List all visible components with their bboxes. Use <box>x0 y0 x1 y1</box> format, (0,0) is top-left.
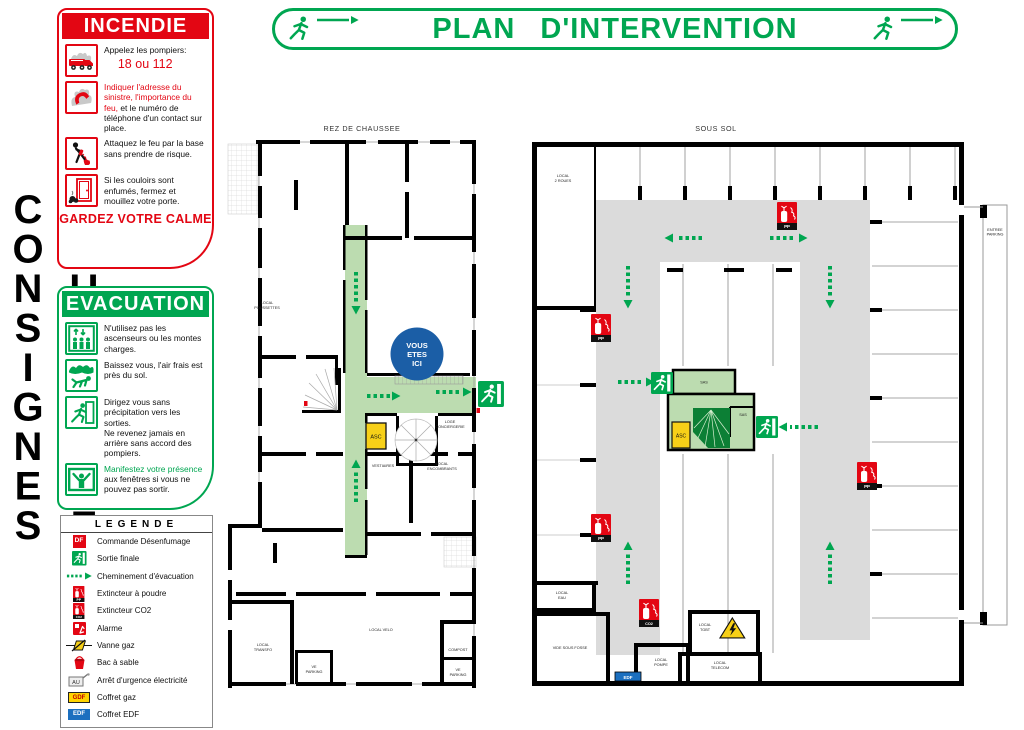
legend-item-alarme: Alarme <box>61 619 212 636</box>
legend-item-vanne-gaz: Vanne gaz <box>61 637 212 654</box>
legend-item-coffret-edf: EDF Coffret EDF <box>61 706 212 723</box>
svg-text:ASC: ASC <box>370 435 381 441</box>
svg-text:PARKING: PARKING <box>450 673 467 677</box>
svg-text:ENTREE: ENTREE <box>987 228 1003 232</box>
incendie-header: INCENDIE <box>62 13 209 39</box>
svg-text:ICI: ICI <box>412 359 422 368</box>
svg-text:CO2: CO2 <box>76 615 83 619</box>
at-windows-text: aux fenêtres si vous ne pouvez pas sorti… <box>104 474 190 494</box>
incendie-item-porte: Si les couloirs sont enfumés, fermez et … <box>59 172 212 209</box>
legend-header: LEGENDE <box>61 516 212 533</box>
svg-text:CO2: CO2 <box>645 622 653 626</box>
final-exit-icon-soussol-east <box>756 416 778 438</box>
legend-item-desenfumage: DF Commande Désenfumage <box>61 533 212 550</box>
svg-text:VOUS: VOUS <box>406 341 428 350</box>
svg-text:COMPOST: COMPOST <box>448 648 468 652</box>
incendie-panel: INCENDIE Appelez les pompiers: 18 ou 112 <box>57 8 214 269</box>
staircase-northwest <box>303 368 337 410</box>
legend-item-bac-sable: Bac à sable <box>61 654 212 671</box>
attack-fire-text: Attaquez le feu par la base sans prendre… <box>104 137 207 159</box>
evacuation-item-ascenseurs: N'utilisez pas les ascenseurs ou les mon… <box>59 320 212 357</box>
final-exit-icon <box>66 551 92 566</box>
svg-text:PP: PP <box>784 224 790 229</box>
staircase-central <box>395 419 437 461</box>
svg-text:POUSSETTES: POUSSETTES <box>254 306 280 310</box>
final-exit-icon-rdc <box>478 381 504 407</box>
svg-text:LOCAL: LOCAL <box>655 658 667 662</box>
legend-item-sortie-finale: Sortie finale <box>61 550 212 567</box>
call-firefighters-text: Appelez les pompiers: <box>104 45 186 55</box>
svg-text:LOGE: LOGE <box>445 420 456 424</box>
svg-text:ENCOMBRANTS: ENCOMBRANTS <box>427 467 457 471</box>
svg-text:LOCAL: LOCAL <box>436 462 448 466</box>
floor-plan-rez-de-chaussee: REZ DE CHAUSSEE <box>226 120 508 692</box>
legend-item-ext-co2: CO2 Extincteur CO2 <box>61 602 212 619</box>
svg-text:LOCAL: LOCAL <box>257 643 269 647</box>
extinguisher-mark <box>304 401 308 406</box>
window-presence-icon <box>65 463 98 496</box>
svg-text:LOCAL VELO: LOCAL VELO <box>369 628 393 632</box>
evacuation-path-icon <box>66 571 92 581</box>
electrical-danger-icon <box>720 618 745 638</box>
svg-text:VESTIAIRES: VESTIAIRES <box>372 464 395 468</box>
svg-text:ASC: ASC <box>676 434 687 440</box>
patio-hatch <box>228 144 258 214</box>
svg-text:ETES: ETES <box>407 350 427 359</box>
gardez-votre-calme: GARDEZ VOTRE CALME <box>59 212 212 226</box>
crawl-low-icon <box>65 359 98 392</box>
door-smoke-icon <box>65 174 98 207</box>
svg-text:LOCAL: LOCAL <box>714 661 726 665</box>
extinguisher-co2-icon: CO2 <box>66 603 92 619</box>
edf-box-icon: EDF <box>68 709 90 720</box>
svg-text:SAS: SAS <box>700 381 708 385</box>
plan-title-soussol: SOUS SOL <box>695 124 737 133</box>
gas-valve-icon <box>66 639 92 652</box>
floor-plan-sous-sol: SOUS SOL <box>528 120 1012 692</box>
title-banner: PLAN D'INTERVENTION <box>272 8 958 50</box>
evacuation-header: EVACUATION <box>62 291 209 317</box>
extinguisher-mark <box>477 408 481 413</box>
terrace-hatch <box>444 537 476 567</box>
svg-text:PARKING: PARKING <box>306 670 323 674</box>
legend-panel: LEGENDE DF Commande Désenfumage Sortie f… <box>60 515 213 728</box>
extinguisher-pp-icon: PP <box>66 586 92 602</box>
plan-title-rdc: REZ DE CHAUSSEE <box>324 124 401 133</box>
sand-bucket-icon <box>66 656 92 670</box>
svg-text:PP: PP <box>598 336 604 341</box>
evacuation-panel: EVACUATION N'utilisez pas les ascenseurs… <box>57 286 214 510</box>
svg-text:PP: PP <box>598 536 604 541</box>
incendie-item-pompiers: Appelez les pompiers: 18 ou 112 <box>59 42 212 79</box>
svg-text:LOCAL: LOCAL <box>699 623 711 627</box>
parking-ramp: ENTREE PARKING <box>964 205 1007 625</box>
edf-cabinet: EDF <box>615 672 641 681</box>
vertical-page-title: CONSIGNES D'URGENCE <box>0 2 56 730</box>
svg-text:VE: VE <box>311 665 317 669</box>
emergency-numbers: 18 ou 112 <box>104 57 186 72</box>
svg-text:EAU: EAU <box>558 596 566 600</box>
fire-truck-icon <box>65 44 98 77</box>
go-to-exits-text: Dirigez vous sans précipitation vers les… <box>104 397 180 428</box>
legend-item-arret-urgence: AU Arrêt d'urgence électricité <box>61 671 212 688</box>
svg-text:LOCAL: LOCAL <box>261 301 273 305</box>
svg-text:2 ROUES: 2 ROUES <box>555 179 572 183</box>
exit-runner-right-icon <box>867 10 947 49</box>
svg-text:VE: VE <box>455 668 461 672</box>
emergency-stop-icon: AU <box>66 673 92 687</box>
svg-text:PP: PP <box>864 484 870 489</box>
svg-text:POMPE: POMPE <box>654 663 668 667</box>
phone-contact-text: et le numéro de téléphone d'un contact s… <box>104 103 202 134</box>
exit-runner-left-icon <box>283 10 363 49</box>
legend-item-cheminement: Cheminement d'évacuation <box>61 568 212 585</box>
incendie-item-attaquez: Attaquez le feu par la base sans prendre… <box>59 135 212 172</box>
you-are-here-badge: VOUS ETES ICI <box>391 328 444 381</box>
never-go-back-text: Ne revenez jamais en arrière sans accord… <box>104 428 192 459</box>
legend-item-coffret-gaz: GDF Coffret gaz <box>61 689 212 706</box>
evacuation-item-fenetres: Manifestez votre présence aux fenêtres s… <box>59 461 212 498</box>
svg-text:AU: AU <box>72 680 80 686</box>
exit-run-icon <box>65 396 98 429</box>
incendie-item-adresse: Indiquer l'adresse du sinistre, l'import… <box>59 79 212 135</box>
svg-text:LOCAL: LOCAL <box>556 591 568 595</box>
df-icon: DF <box>73 535 86 548</box>
no-elevator-text: N'utilisez pas les ascenseurs ou les mon… <box>104 322 207 354</box>
svg-text:EDF: EDF <box>624 675 633 680</box>
svg-text:TELECOM: TELECOM <box>711 666 729 670</box>
banner-title: PLAN D'INTERVENTION <box>432 13 797 46</box>
svg-text:PARKING: PARKING <box>987 233 1004 237</box>
elevator-asc-rdc: ASC <box>366 423 386 449</box>
evacuation-core-soussol: ASC SAS SAS <box>668 370 754 450</box>
svg-text:TGBT: TGBT <box>700 628 711 632</box>
svg-text:TRANSFO: TRANSFO <box>254 648 272 652</box>
elevator-icon <box>65 322 98 355</box>
show-presence-text: Manifestez votre présence <box>104 464 202 474</box>
legend-item-ext-poudre: PP Extincteur à poudre <box>61 585 212 602</box>
close-door-text: Si les couloirs sont enfumés, fermez et … <box>104 174 207 206</box>
phone-icon <box>65 81 98 114</box>
evacuation-item-baissez: Baissez vous, l'air frais est près du so… <box>59 357 212 394</box>
gdf-box-icon: GDF <box>68 692 90 703</box>
svg-text:LOCAL: LOCAL <box>557 174 569 178</box>
svg-text:SAS: SAS <box>739 413 747 417</box>
alarm-icon <box>66 622 92 635</box>
stay-low-text: Baissez vous, l'air frais est près du so… <box>104 359 207 381</box>
final-exit-icon-soussol-west <box>651 372 673 394</box>
evacuation-item-sorties: Dirigez vous sans précipitation vers les… <box>59 394 212 461</box>
svg-text:PP: PP <box>77 598 82 602</box>
svg-text:VIDE SOUS FOSSE: VIDE SOUS FOSSE <box>553 646 588 650</box>
extinguish-fire-icon <box>65 137 98 170</box>
svg-text:CONCIERGERIE: CONCIERGERIE <box>435 425 465 429</box>
